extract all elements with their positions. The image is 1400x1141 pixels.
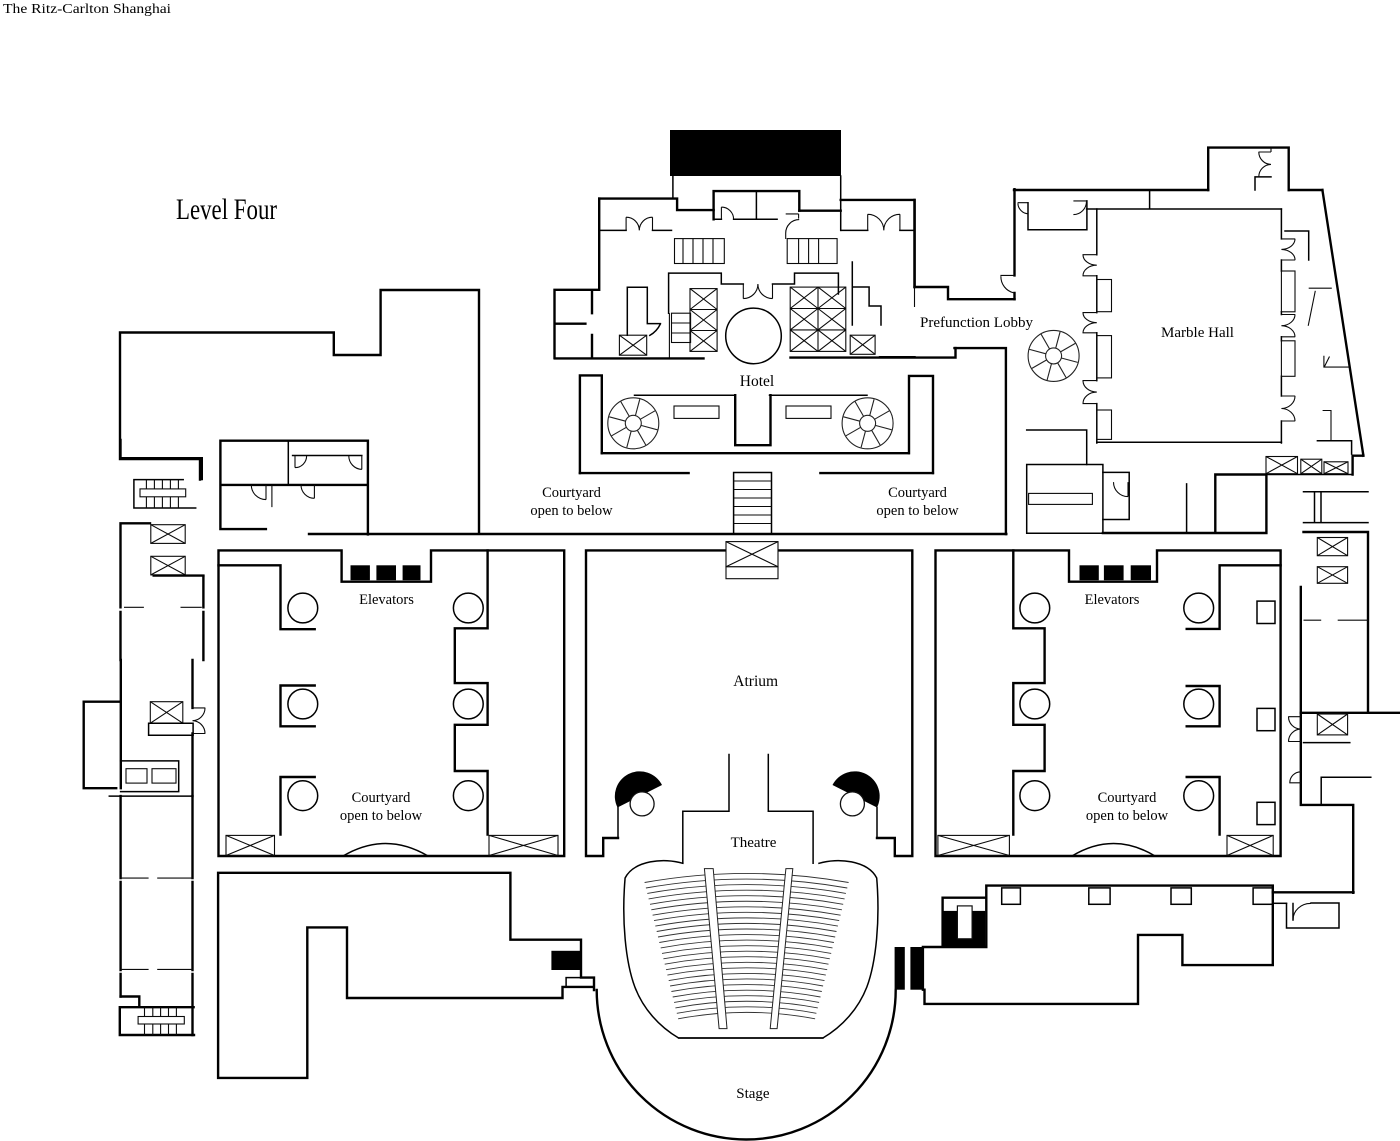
svg-text:Stage: Stage xyxy=(736,1086,770,1102)
svg-text:The Ritz-Carlton Shanghai: The Ritz-Carlton Shanghai xyxy=(3,1,171,16)
svg-text:Elevators: Elevators xyxy=(1085,592,1140,608)
svg-text:Theatre: Theatre xyxy=(731,835,777,851)
svg-text:open to below: open to below xyxy=(530,503,613,519)
svg-text:Marble Hall: Marble Hall xyxy=(1161,325,1234,341)
svg-text:open to below: open to below xyxy=(1086,808,1169,824)
svg-text:Hotel: Hotel xyxy=(740,373,774,390)
svg-text:open to below: open to below xyxy=(340,808,423,824)
svg-text:Courtyard: Courtyard xyxy=(542,485,602,501)
svg-text:open to below: open to below xyxy=(876,503,959,519)
svg-text:Courtyard: Courtyard xyxy=(888,485,948,501)
svg-text:Prefunction Lobby: Prefunction Lobby xyxy=(920,315,1033,331)
svg-text:Atrium: Atrium xyxy=(733,673,778,690)
svg-text:Level Four: Level Four xyxy=(176,193,277,226)
svg-text:Elevators: Elevators xyxy=(359,592,414,608)
svg-text:Courtyard: Courtyard xyxy=(352,790,412,806)
svg-text:Courtyard: Courtyard xyxy=(1098,790,1158,806)
